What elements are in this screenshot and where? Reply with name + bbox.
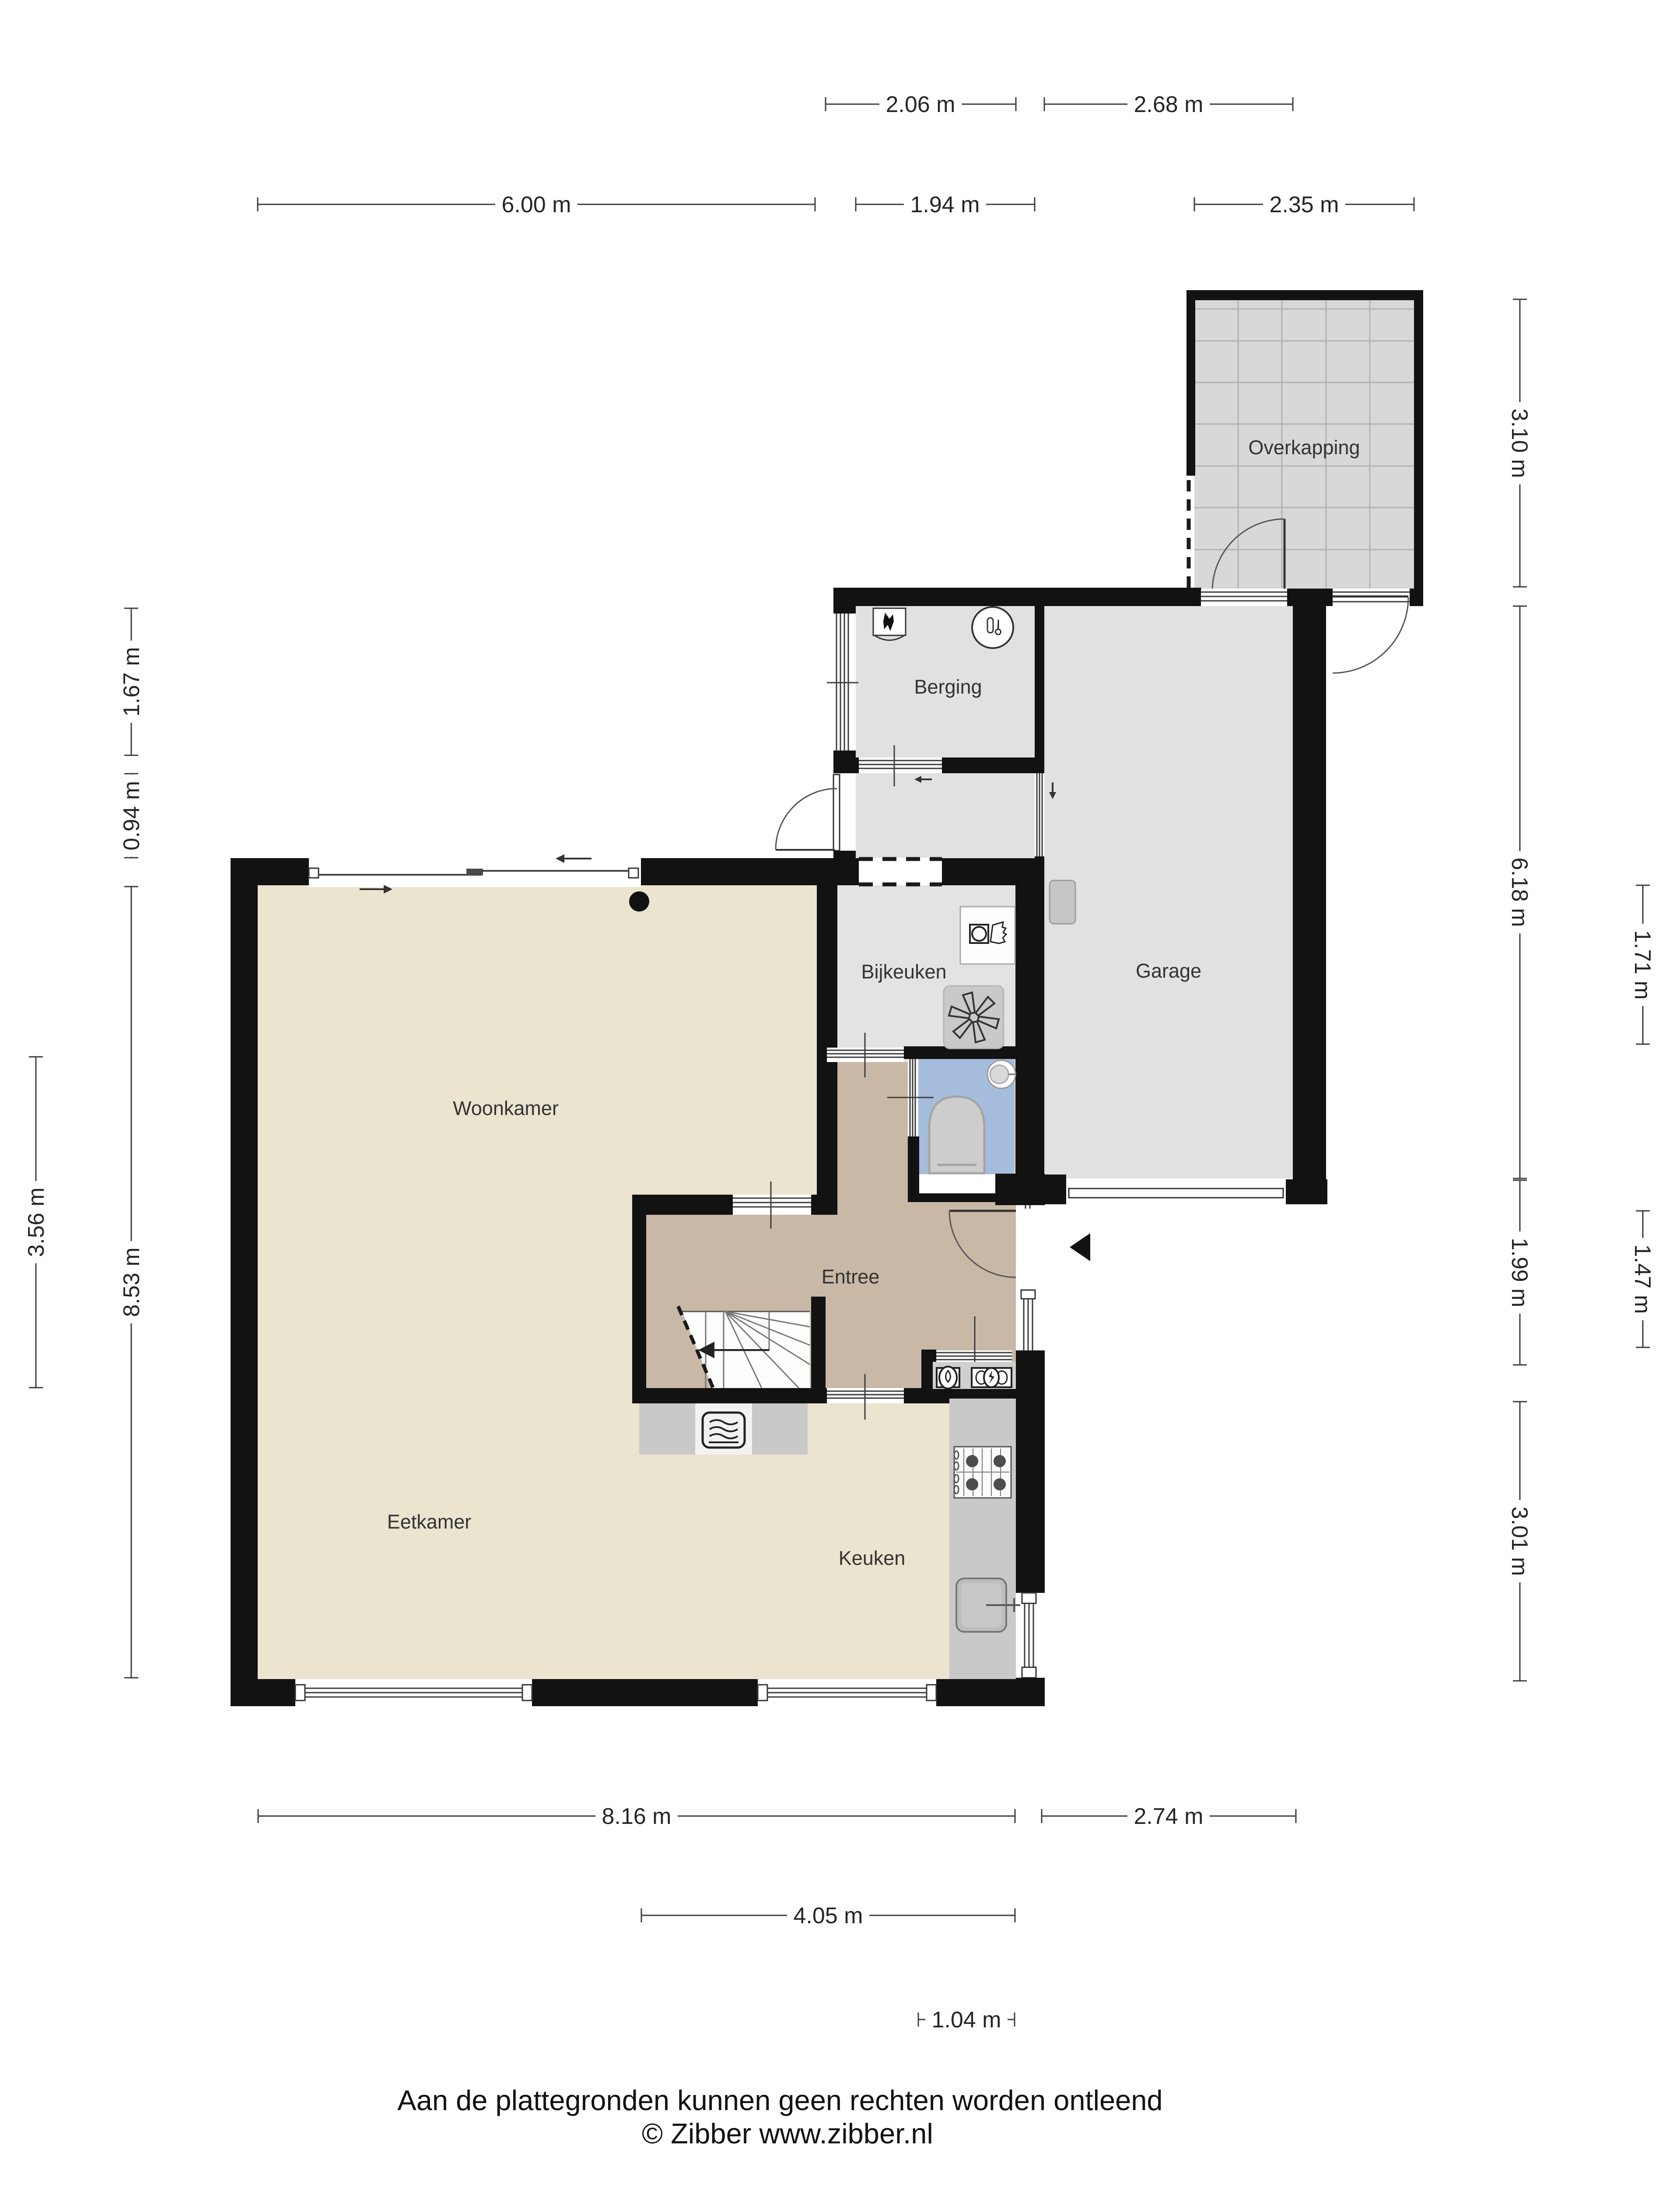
svg-text:Aan de plattegronden kunnen ge: Aan de plattegronden kunnen geen rechten… — [397, 2084, 1162, 2116]
svg-text:Overkapping: Overkapping — [1248, 436, 1360, 459]
svg-text:1.71 m: 1.71 m — [1630, 930, 1655, 1000]
svg-text:4.05 m: 4.05 m — [794, 1903, 863, 1929]
svg-text:2.68 m: 2.68 m — [1134, 92, 1204, 117]
svg-text:3.01 m: 3.01 m — [1507, 1507, 1532, 1576]
svg-text:1.94 m: 1.94 m — [910, 192, 980, 217]
svg-text:Berging: Berging — [914, 676, 982, 698]
svg-text:3.56 m: 3.56 m — [24, 1188, 49, 1257]
svg-text:Keuken: Keuken — [839, 1547, 906, 1569]
svg-text:2.74 m: 2.74 m — [1134, 1804, 1204, 1829]
svg-text:0.94 m: 0.94 m — [119, 781, 144, 851]
svg-text:8.16 m: 8.16 m — [602, 1804, 672, 1829]
svg-text:1.99 m: 1.99 m — [1507, 1238, 1532, 1308]
svg-text:8.53 m: 8.53 m — [119, 1248, 144, 1317]
svg-text:6.00 m: 6.00 m — [502, 192, 571, 217]
svg-text:© Zibber www.zibber.nl: © Zibber www.zibber.nl — [642, 2118, 933, 2149]
svg-text:Garage: Garage — [1136, 960, 1201, 982]
svg-text:Entree: Entree — [822, 1266, 880, 1288]
svg-text:6.18 m: 6.18 m — [1507, 858, 1532, 927]
svg-text:Eetkamer: Eetkamer — [387, 1511, 472, 1533]
svg-text:1.47 m: 1.47 m — [1630, 1245, 1655, 1314]
svg-text:2.35 m: 2.35 m — [1270, 192, 1339, 217]
svg-text:1.67 m: 1.67 m — [119, 647, 144, 717]
svg-text:1.04 m: 1.04 m — [932, 2007, 1001, 2033]
svg-text:2.06 m: 2.06 m — [886, 92, 955, 117]
svg-text:Woonkamer: Woonkamer — [453, 1097, 559, 1119]
svg-text:Bijkeuken: Bijkeuken — [861, 961, 946, 983]
svg-text:3.10 m: 3.10 m — [1507, 409, 1532, 478]
